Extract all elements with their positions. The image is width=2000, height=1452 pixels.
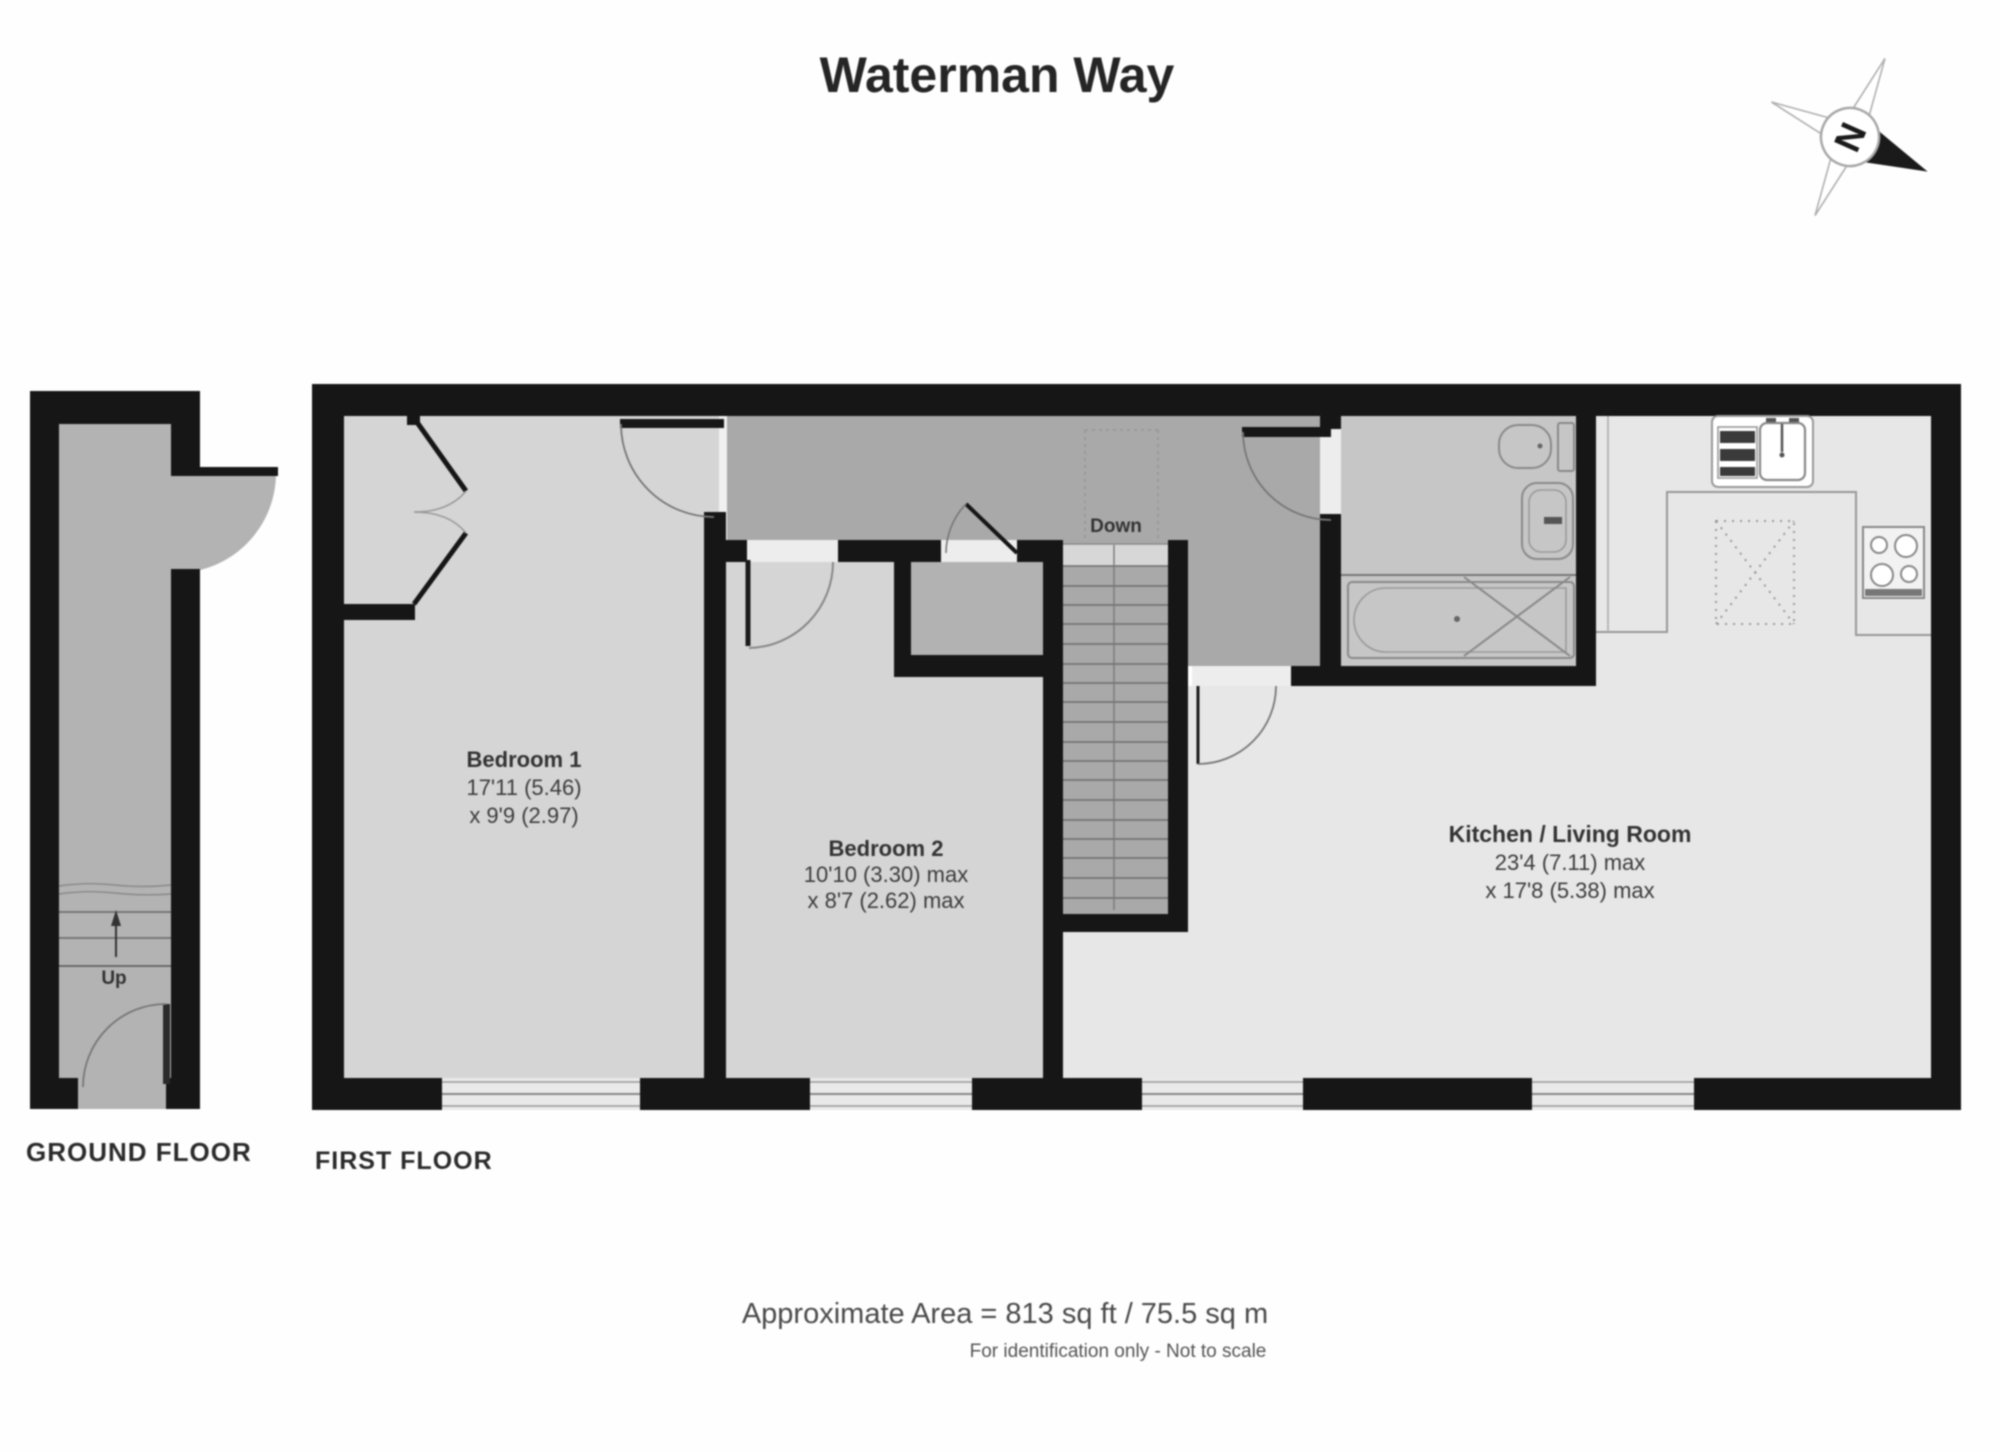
svg-text:x 17'8 (5.38) max: x 17'8 (5.38) max (1485, 878, 1654, 903)
svg-text:For identification only - Not: For identification only - Not to scale (970, 1341, 1267, 1362)
svg-text:Approximate Area = 813 sq ft /: Approximate Area = 813 sq ft / 75.5 sq m (742, 1298, 1268, 1330)
svg-text:x 9'9 (2.97): x 9'9 (2.97) (469, 803, 578, 828)
svg-text:17'11 (5.46): 17'11 (5.46) (466, 775, 581, 800)
svg-text:Kitchen / Living Room: Kitchen / Living Room (1449, 821, 1692, 847)
svg-text:10'10 (3.30) max: 10'10 (3.30) max (804, 862, 968, 887)
svg-text:Up: Up (101, 968, 126, 989)
svg-text:x 8'7 (2.62) max: x 8'7 (2.62) max (807, 888, 964, 913)
svg-text:23'4 (7.11) max: 23'4 (7.11) max (1495, 850, 1646, 875)
svg-text:Waterman Way: Waterman Way (820, 47, 1175, 103)
svg-text:GROUND FLOOR: GROUND FLOOR (26, 1137, 252, 1167)
svg-text:Down: Down (1090, 516, 1142, 537)
svg-text:Bedroom 1: Bedroom 1 (467, 747, 582, 772)
svg-text:FIRST FLOOR: FIRST FLOOR (315, 1147, 493, 1175)
svg-text:Bedroom 2: Bedroom 2 (829, 836, 944, 861)
